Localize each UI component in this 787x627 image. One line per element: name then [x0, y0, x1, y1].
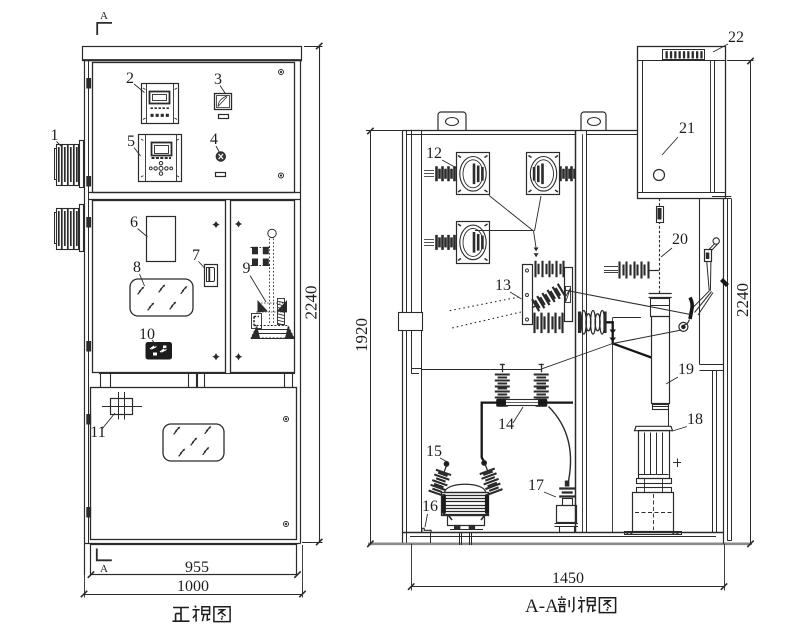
svg-text:A: A	[100, 10, 108, 22]
svg-text:20: 20	[672, 231, 688, 248]
svg-text:18: 18	[687, 411, 703, 428]
svg-text:2240: 2240	[302, 286, 321, 320]
svg-text:13: 13	[495, 277, 511, 294]
svg-text:A: A	[100, 563, 108, 575]
svg-text:6: 6	[130, 214, 138, 231]
svg-text:1: 1	[51, 127, 59, 144]
svg-text:22: 22	[728, 29, 744, 46]
svg-text:19: 19	[678, 361, 694, 378]
svg-text:3: 3	[214, 71, 222, 88]
svg-text:A-A: A-A	[525, 596, 559, 617]
svg-text:9: 9	[243, 260, 251, 277]
svg-text:4: 4	[210, 131, 218, 148]
svg-text:2: 2	[126, 70, 134, 87]
svg-text:1920: 1920	[352, 318, 371, 352]
svg-text:1000: 1000	[177, 578, 209, 595]
svg-text:1450: 1450	[552, 570, 584, 587]
svg-text:5: 5	[127, 133, 135, 150]
svg-text:17: 17	[528, 477, 544, 494]
svg-text:955: 955	[185, 559, 209, 576]
svg-text:14: 14	[498, 416, 514, 433]
svg-text:21: 21	[679, 120, 695, 137]
svg-text:11: 11	[90, 424, 105, 441]
svg-text:2240: 2240	[733, 283, 752, 317]
svg-text:16: 16	[422, 498, 438, 515]
svg-text:15: 15	[426, 443, 442, 460]
svg-text:12: 12	[426, 145, 442, 162]
svg-text:8: 8	[133, 259, 141, 276]
